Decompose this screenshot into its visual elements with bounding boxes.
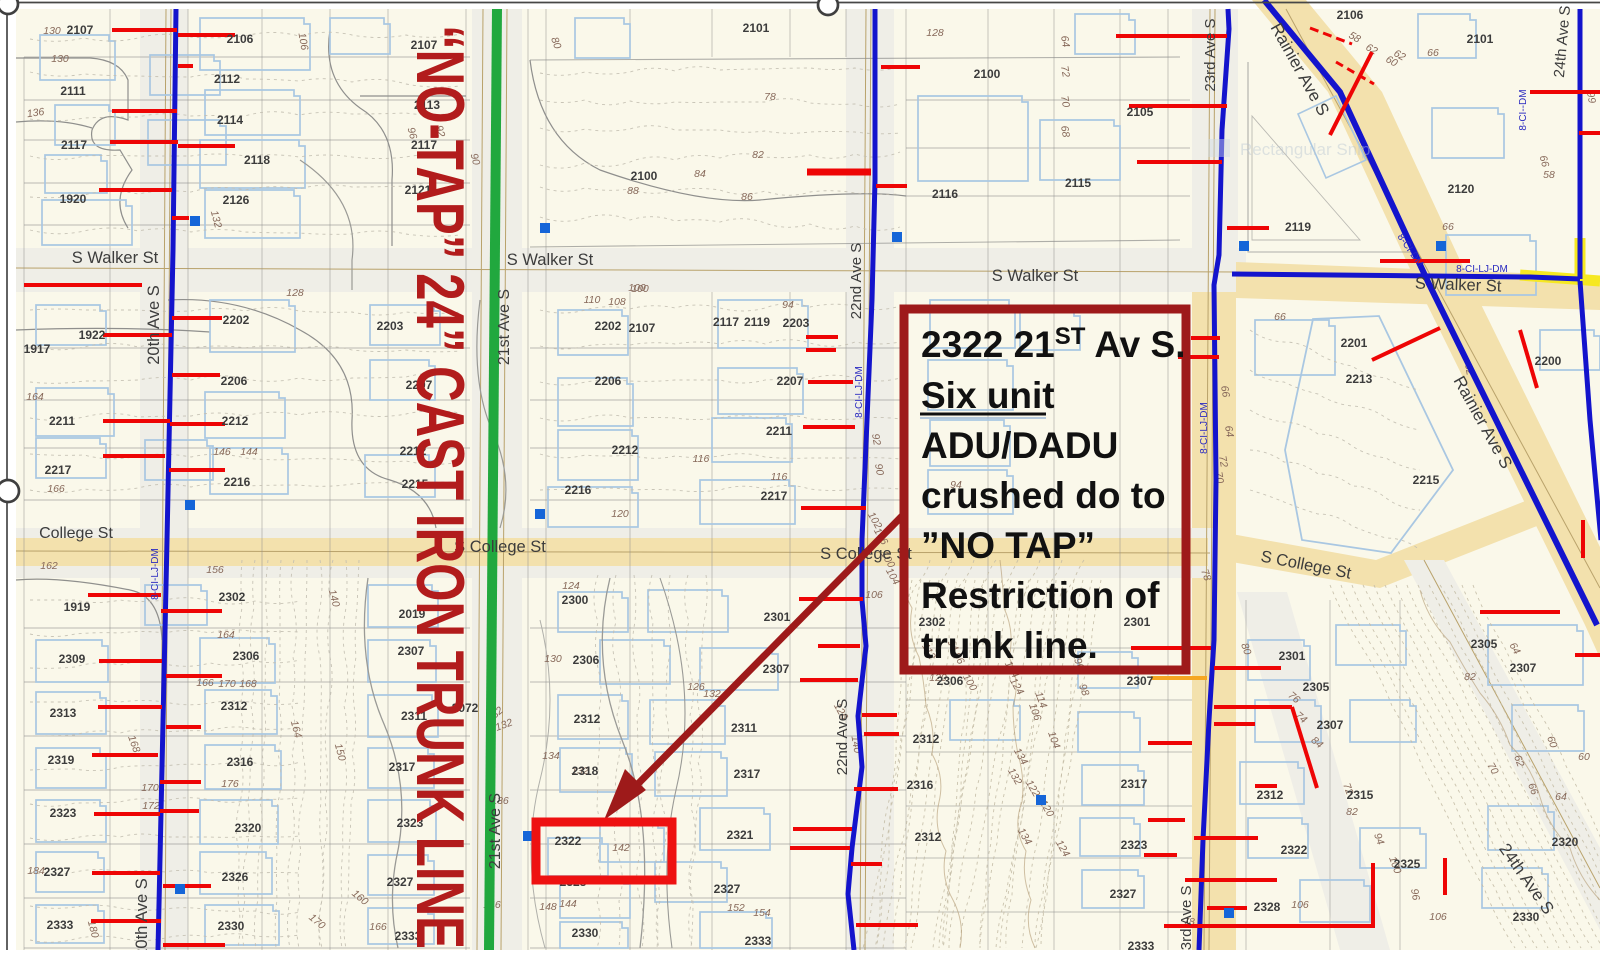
svg-text:2306: 2306	[233, 649, 260, 663]
svg-text:2206: 2206	[595, 374, 622, 388]
svg-text:164: 164	[217, 629, 235, 641]
svg-text:66: 66	[1274, 311, 1286, 323]
svg-text:2326: 2326	[222, 870, 249, 884]
svg-text:2317: 2317	[1121, 777, 1148, 791]
svg-text:2322: 2322	[555, 834, 582, 848]
svg-text:2320: 2320	[235, 821, 262, 835]
svg-text:78: 78	[764, 91, 776, 103]
svg-text:2311: 2311	[731, 721, 757, 735]
svg-text:2217: 2217	[761, 489, 788, 503]
svg-text:2333: 2333	[745, 934, 772, 948]
svg-text:2300: 2300	[562, 593, 589, 607]
svg-text:23rd Ave S: 23rd Ave S	[1178, 885, 1195, 950]
svg-text:8-CI-LJ-DM: 8-CI-LJ-DM	[1456, 264, 1508, 275]
svg-text:2330: 2330	[572, 926, 599, 940]
svg-text:crushed do to: crushed do to	[921, 475, 1166, 516]
svg-text:2307: 2307	[763, 662, 790, 676]
svg-text:22nd Ave S: 22nd Ave S	[834, 699, 851, 775]
svg-text:2321: 2321	[727, 828, 754, 842]
svg-text:144: 144	[559, 898, 577, 910]
svg-text:8-CI-LJ-DM: 8-CI-LJ-DM	[150, 548, 161, 600]
svg-text:20th Ave S: 20th Ave S	[145, 285, 163, 365]
svg-text:176: 176	[221, 778, 239, 790]
svg-text:64: 64	[1058, 35, 1072, 49]
svg-text:130: 130	[43, 25, 61, 37]
svg-text:8-CI-LJ-DM: 8-CI-LJ-DM	[1199, 402, 1210, 454]
svg-text:60: 60	[1578, 751, 1590, 763]
svg-text:2307: 2307	[1317, 718, 1344, 732]
svg-text:2106: 2106	[1337, 8, 1364, 22]
svg-text:184: 184	[27, 865, 45, 877]
svg-text:S Walker St: S Walker St	[507, 251, 594, 269]
svg-text:166: 166	[369, 921, 387, 933]
svg-text:2203: 2203	[783, 316, 810, 330]
svg-text:146: 146	[213, 446, 231, 458]
svg-text:2327: 2327	[1110, 887, 1137, 901]
svg-text:134: 134	[542, 750, 560, 762]
svg-text:2306: 2306	[937, 674, 964, 688]
svg-text:2111: 2111	[60, 84, 86, 98]
svg-text:2301: 2301	[1279, 649, 1306, 663]
svg-text:”NO TAP”: ”NO TAP”	[921, 525, 1095, 566]
svg-text:2302: 2302	[219, 590, 246, 604]
svg-text:128: 128	[926, 27, 944, 39]
svg-text:142: 142	[612, 842, 630, 854]
svg-text:2202: 2202	[595, 319, 622, 333]
svg-text:20th Ave S: 20th Ave S	[133, 878, 151, 950]
svg-text:166: 166	[196, 677, 214, 689]
svg-text:2216: 2216	[565, 483, 592, 497]
svg-text:68: 68	[1058, 125, 1072, 139]
svg-text:116: 116	[693, 453, 710, 465]
svg-text:2301: 2301	[764, 610, 791, 624]
svg-text:166: 166	[47, 483, 65, 495]
svg-text:2216: 2216	[224, 475, 251, 489]
svg-text:S Walker St: S Walker St	[1415, 274, 1502, 295]
svg-text:Rectangular Snip: Rectangular Snip	[1240, 140, 1370, 159]
svg-text:124: 124	[562, 580, 580, 592]
svg-text:Six unit: Six unit	[921, 375, 1055, 416]
svg-text:2201: 2201	[1341, 336, 1368, 350]
svg-text:2312: 2312	[915, 830, 942, 844]
svg-text:2316: 2316	[227, 755, 254, 769]
svg-text:2312: 2312	[1257, 788, 1284, 802]
svg-text:2307: 2307	[1127, 674, 1154, 688]
svg-text:120: 120	[611, 508, 629, 520]
svg-text:2217: 2217	[45, 463, 72, 477]
svg-text:106: 106	[1291, 899, 1309, 911]
svg-text:2301: 2301	[1124, 615, 1151, 629]
svg-text:“NO-TAP” 24” CAST IRON TRUNK L: “NO-TAP” 24” CAST IRON TRUNK LINE	[402, 25, 478, 949]
svg-text:2323: 2323	[50, 806, 77, 820]
svg-text:21st Ave S: 21st Ave S	[496, 289, 513, 365]
svg-text:21st Ave S: 21st Ave S	[487, 793, 504, 869]
svg-text:2211: 2211	[49, 414, 75, 428]
svg-text:156: 156	[206, 564, 224, 576]
svg-text:2203: 2203	[377, 319, 404, 333]
svg-text:2117: 2117	[61, 138, 87, 152]
svg-text:2313: 2313	[50, 706, 77, 720]
svg-text:2323: 2323	[1121, 838, 1148, 852]
svg-text:82: 82	[752, 149, 764, 161]
svg-text:2100: 2100	[974, 67, 1001, 81]
svg-text:2206: 2206	[221, 374, 248, 388]
svg-text:2117: 2117	[713, 315, 739, 329]
svg-text:Restriction of: Restriction of	[921, 575, 1160, 616]
svg-text:136: 136	[26, 106, 45, 120]
svg-text:84: 84	[694, 168, 706, 180]
svg-text:2101: 2101	[743, 21, 770, 35]
svg-text:2305: 2305	[1303, 680, 1330, 694]
svg-text:90: 90	[872, 463, 886, 477]
svg-text:2322: 2322	[1281, 843, 1308, 857]
svg-text:2319: 2319	[48, 753, 75, 767]
svg-text:130: 130	[51, 53, 69, 65]
svg-text:64: 64	[1555, 791, 1567, 803]
svg-text:2207: 2207	[777, 374, 804, 388]
svg-text:2333: 2333	[47, 918, 74, 932]
svg-text:S Walker St: S Walker St	[992, 267, 1079, 285]
svg-text:2100: 2100	[631, 169, 658, 183]
svg-text:2327: 2327	[44, 865, 71, 879]
svg-text:2114: 2114	[217, 113, 243, 127]
svg-text:168: 168	[239, 678, 257, 690]
svg-text:110: 110	[584, 294, 601, 306]
svg-text:2118: 2118	[244, 153, 270, 167]
svg-text:2115: 2115	[1065, 176, 1091, 190]
svg-text:1917: 1917	[24, 342, 51, 356]
svg-text:College St: College St	[39, 525, 113, 542]
svg-text:88: 88	[627, 185, 639, 197]
svg-text:170: 170	[218, 678, 236, 690]
svg-text:2316: 2316	[907, 778, 934, 792]
svg-text:2328: 2328	[1254, 900, 1281, 914]
svg-text:162: 162	[40, 560, 58, 572]
svg-text:130: 130	[544, 653, 562, 665]
svg-text:2330: 2330	[1513, 910, 1540, 924]
svg-text:2200: 2200	[1535, 354, 1562, 368]
svg-text:2312: 2312	[913, 732, 940, 746]
svg-text:2211: 2211	[766, 424, 792, 438]
svg-text:66: 66	[1442, 221, 1454, 233]
svg-text:70: 70	[1058, 95, 1072, 109]
svg-text:2327: 2327	[714, 882, 741, 896]
svg-text:2212: 2212	[222, 414, 249, 428]
svg-text:2318: 2318	[572, 764, 599, 778]
svg-text:2119: 2119	[744, 315, 770, 329]
svg-text:1920: 1920	[60, 192, 87, 206]
svg-text:2320: 2320	[1552, 835, 1579, 849]
svg-text:2202: 2202	[223, 313, 250, 327]
svg-text:64: 64	[1222, 425, 1236, 439]
svg-text:2307: 2307	[1510, 661, 1537, 675]
svg-text:2330: 2330	[218, 919, 245, 933]
svg-text:92: 92	[869, 433, 883, 447]
svg-text:72: 72	[1058, 65, 1072, 79]
svg-text:2215: 2215	[1413, 473, 1440, 487]
svg-text:106: 106	[865, 589, 883, 601]
svg-text:2107: 2107	[67, 23, 94, 37]
svg-text:8-CI-LJ-DM: 8-CI-LJ-DM	[854, 366, 865, 418]
svg-text:ADU/DADU: ADU/DADU	[921, 425, 1118, 466]
svg-text:2119: 2119	[1285, 220, 1311, 234]
svg-text:82: 82	[1346, 806, 1358, 818]
svg-text:2317: 2317	[734, 767, 761, 781]
svg-text:2305: 2305	[1471, 637, 1498, 651]
svg-text:2315: 2315	[1347, 788, 1374, 802]
svg-text:86: 86	[741, 191, 753, 203]
svg-text:82: 82	[1464, 671, 1476, 683]
svg-text:2322 21ST Av S.: 2322 21ST Av S.	[921, 323, 1186, 365]
svg-text:58: 58	[1543, 169, 1555, 181]
svg-text:2107: 2107	[629, 321, 656, 335]
svg-text:128: 128	[286, 287, 304, 299]
svg-text:2112: 2112	[214, 72, 240, 86]
svg-text:2312: 2312	[574, 712, 601, 726]
svg-text:144: 144	[240, 446, 258, 458]
svg-text:2116: 2116	[932, 187, 958, 201]
svg-text:2120: 2120	[1448, 182, 1475, 196]
svg-text:2212: 2212	[612, 443, 639, 457]
svg-text:1919: 1919	[64, 600, 91, 614]
svg-text:154: 154	[753, 907, 771, 919]
svg-text:2312: 2312	[221, 699, 248, 713]
svg-text:152: 152	[727, 902, 745, 914]
svg-text:trunk line.: trunk line.	[921, 625, 1098, 666]
svg-text:8-CI--DM: 8-CI--DM	[1518, 89, 1529, 130]
svg-text:1922: 1922	[79, 328, 106, 342]
svg-text:2106: 2106	[227, 32, 254, 46]
svg-text:94: 94	[782, 299, 794, 311]
svg-text:148: 148	[539, 901, 557, 913]
svg-text:2126: 2126	[223, 193, 250, 207]
svg-text:2325: 2325	[1394, 857, 1421, 871]
svg-text:106: 106	[1429, 911, 1447, 923]
svg-text:2105: 2105	[1127, 105, 1154, 119]
svg-text:172: 172	[142, 800, 160, 812]
svg-text:2213: 2213	[1346, 372, 1373, 386]
svg-text:2309: 2309	[59, 652, 86, 666]
svg-text:100: 100	[628, 282, 646, 294]
svg-text:2333: 2333	[1128, 939, 1155, 950]
svg-text:96: 96	[1408, 888, 1422, 902]
svg-text:66: 66	[1427, 47, 1439, 59]
svg-text:2306: 2306	[573, 653, 600, 667]
svg-text:170: 170	[141, 782, 159, 794]
svg-text:22nd Ave S: 22nd Ave S	[848, 243, 865, 319]
svg-text:23rd Ave S: 23rd Ave S	[1202, 18, 1219, 91]
svg-text:66: 66	[1218, 385, 1232, 399]
svg-text:164: 164	[26, 391, 44, 403]
svg-text:2101: 2101	[1467, 32, 1494, 46]
svg-text:108: 108	[608, 296, 626, 308]
svg-text:116: 116	[771, 471, 788, 483]
svg-text:S Walker St: S Walker St	[72, 249, 159, 267]
